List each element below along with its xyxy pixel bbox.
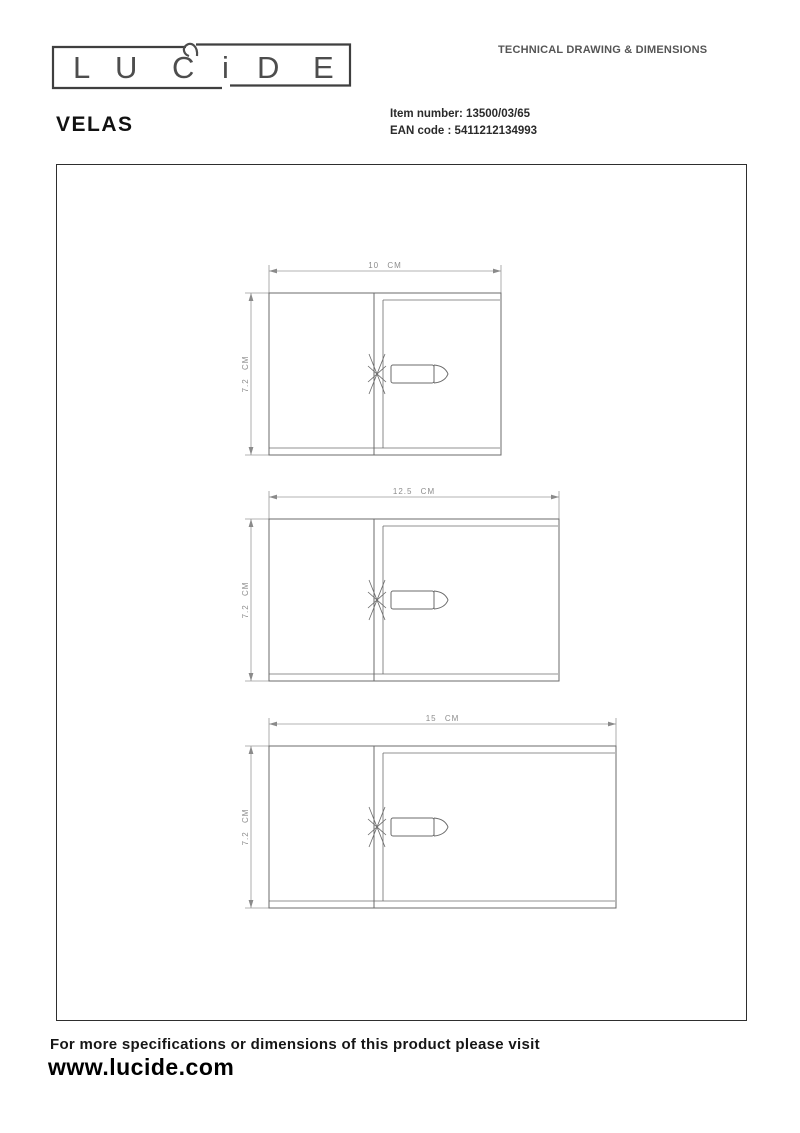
datasheet-page: L U C i D E TECHNICAL DRAWING & DIMENSIO… (0, 0, 800, 1133)
logo-frame (51, 43, 352, 90)
ean-label: EAN code : (390, 125, 451, 137)
brand-letter: E (313, 52, 334, 83)
technical-drawing-small: 10 CM7.2 CM (241, 261, 507, 468)
product-name: VELAS (56, 113, 134, 137)
brand-letter: D (257, 52, 279, 83)
drawing-svg: 10 CM7.2 CM (241, 261, 507, 463)
dimension-height-label: 7.2 CM (241, 356, 250, 393)
dimension-width-label: 12.5 CM (393, 487, 435, 496)
drawing-svg: 12.5 CM7.2 CM (241, 487, 565, 689)
brand-letter: i (222, 52, 229, 83)
dimension-width-label: 15 CM (426, 714, 460, 723)
brand-letter: C (172, 52, 194, 83)
brand-logo: L U C i D E (51, 43, 352, 90)
item-info: Item number: 13500/03/65 EAN code : 5411… (390, 106, 537, 140)
item-number-value: 13500/03/65 (466, 108, 530, 120)
item-number-label: Item number: (390, 108, 463, 120)
technical-drawing-large: 15 CM7.2 CM (241, 714, 622, 921)
dimension-height-label: 7.2 CM (241, 809, 250, 846)
footer-note: For more specifications or dimensions of… (50, 1036, 540, 1053)
drawing-svg: 15 CM7.2 CM (241, 714, 622, 916)
technical-drawing-medium: 12.5 CM7.2 CM (241, 487, 565, 694)
footer-url: www.lucide.com (48, 1054, 234, 1081)
dimension-height-label: 7.2 CM (241, 582, 250, 619)
brand-letter: U (115, 52, 137, 83)
page-tagline: TECHNICAL DRAWING & DIMENSIONS (498, 44, 760, 56)
dimension-width-label: 10 CM (368, 261, 402, 270)
drawing-area: 10 CM7.2 CM 12.5 CM7.2 CM 15 CM7.2 CM (56, 164, 747, 1021)
ean-value: 5411212134993 (455, 125, 538, 137)
brand-letter: L (73, 52, 90, 83)
